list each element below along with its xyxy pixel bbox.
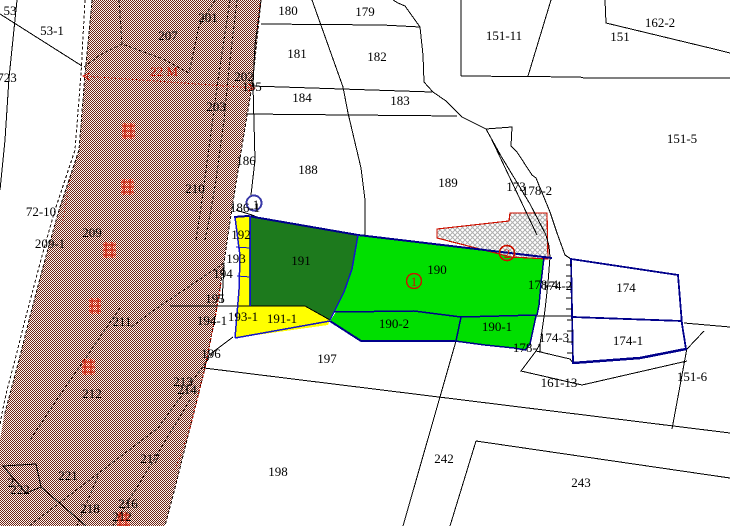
svg-text:53-1: 53-1 xyxy=(40,23,64,38)
svg-text:188: 188 xyxy=(298,162,318,177)
svg-text:196: 196 xyxy=(201,346,221,361)
svg-text:72-10: 72-10 xyxy=(26,204,56,219)
svg-text:180: 180 xyxy=(278,3,298,18)
svg-text:53: 53 xyxy=(4,3,17,18)
svg-text:723: 723 xyxy=(0,70,17,85)
svg-text:22 M: 22 M xyxy=(150,64,178,79)
svg-text:218: 218 xyxy=(80,501,100,516)
svg-text:221: 221 xyxy=(58,468,78,483)
svg-text:151-11: 151-11 xyxy=(486,28,522,43)
svg-text:189: 189 xyxy=(438,175,458,190)
svg-text:202: 202 xyxy=(234,69,254,84)
svg-text:190: 190 xyxy=(427,262,447,277)
svg-text:174-3: 174-3 xyxy=(539,330,569,345)
svg-text:161-13: 161-13 xyxy=(541,375,578,390)
svg-text:217: 217 xyxy=(140,451,160,466)
svg-text:194-1: 194-1 xyxy=(197,313,227,328)
svg-text:193: 193 xyxy=(226,251,246,266)
svg-text:184: 184 xyxy=(292,90,312,105)
svg-text:211: 211 xyxy=(112,314,131,329)
svg-text:191: 191 xyxy=(291,253,311,268)
svg-text:190-1: 190-1 xyxy=(482,319,512,334)
svg-text:198: 198 xyxy=(268,464,288,479)
svg-text:193-1: 193-1 xyxy=(228,309,258,324)
svg-text:212: 212 xyxy=(82,386,102,401)
svg-text:209-1: 209-1 xyxy=(35,236,65,251)
svg-text:210: 210 xyxy=(185,181,205,196)
svg-text:243: 243 xyxy=(571,475,591,490)
svg-text:174-1: 174-1 xyxy=(613,333,643,348)
svg-text:151-6: 151-6 xyxy=(677,369,708,384)
svg-text:209: 209 xyxy=(82,225,102,240)
svg-text:174-2: 174-2 xyxy=(542,278,572,293)
svg-text:2: 2 xyxy=(8,475,15,490)
svg-text:207: 207 xyxy=(158,28,178,43)
svg-text:195: 195 xyxy=(205,291,225,306)
svg-text:183: 183 xyxy=(390,93,410,108)
svg-text:162-2: 162-2 xyxy=(645,15,675,30)
svg-text:203: 203 xyxy=(206,99,226,114)
svg-text:197: 197 xyxy=(317,351,337,366)
svg-text:190-2: 190-2 xyxy=(379,316,409,331)
svg-text:186-1: 186-1 xyxy=(230,200,260,215)
svg-text:191-1: 191-1 xyxy=(267,311,297,326)
svg-text:182: 182 xyxy=(367,49,387,64)
svg-text:242: 242 xyxy=(434,451,454,466)
svg-text:174: 174 xyxy=(616,280,636,295)
svg-text:151: 151 xyxy=(610,29,630,44)
svg-text:179: 179 xyxy=(355,4,375,19)
svg-text:212: 212 xyxy=(112,509,132,524)
svg-text:2: 2 xyxy=(504,246,511,261)
svg-text:178-2: 178-2 xyxy=(522,183,552,198)
svg-text:178-1: 178-1 xyxy=(513,340,543,355)
svg-text:1: 1 xyxy=(411,274,418,289)
svg-text:194: 194 xyxy=(213,266,233,281)
svg-text:181: 181 xyxy=(287,46,307,61)
svg-text:192: 192 xyxy=(231,227,251,242)
svg-text:201: 201 xyxy=(198,10,218,25)
svg-text:214: 214 xyxy=(177,382,197,397)
svg-text:151-5: 151-5 xyxy=(667,131,697,146)
svg-text:186: 186 xyxy=(236,153,256,168)
